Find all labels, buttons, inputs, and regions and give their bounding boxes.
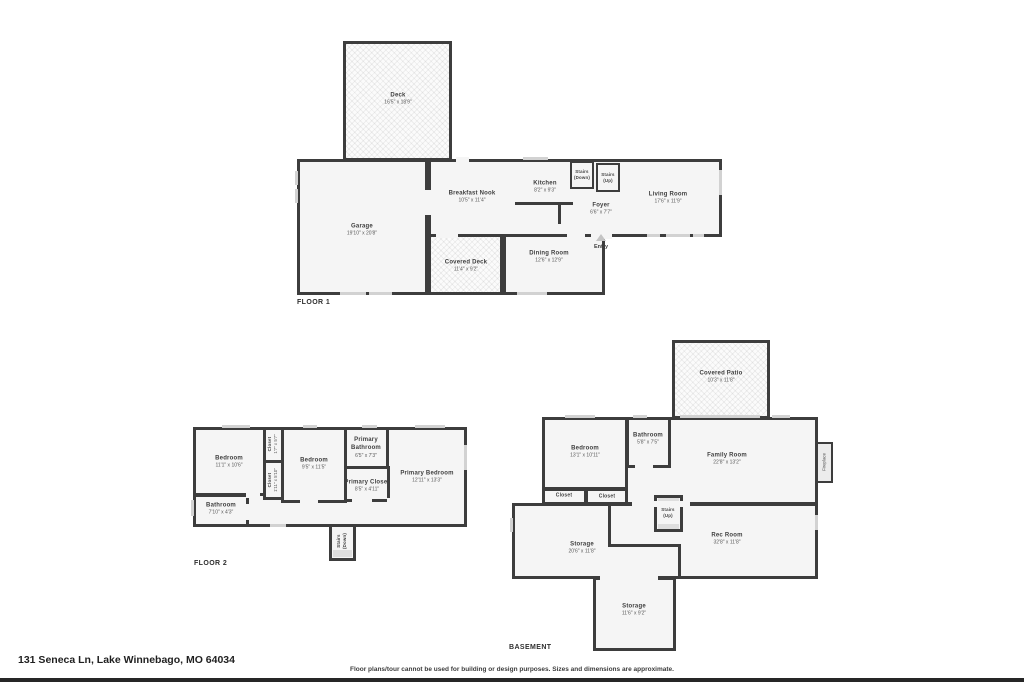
floor2-door-gap — [300, 500, 318, 505]
basement-window — [815, 515, 818, 530]
floor-plan-page: Entry Deck 16'5" x 18'9" Garage 19'10" x… — [0, 0, 1024, 682]
floor2-closet-mid-label: Closet 1'11" x 5'10" — [267, 468, 279, 492]
floor1-window — [517, 292, 547, 295]
floor2-bedroom-left-label: Bedroom 11'1" x 10'6" — [215, 454, 243, 469]
floor2-door-gap — [246, 493, 260, 498]
floor1-living-room-label: Living Room 17'6" x 11'9" — [649, 190, 688, 205]
floor1-kitchen-label: Kitchen 8'2" x 9'3" — [533, 179, 556, 194]
floor1-window — [693, 234, 704, 237]
floor1-breakfast-nook-label: Breakfast Nook 10'5" x 11'4" — [449, 189, 496, 204]
basement-window — [510, 518, 513, 532]
floor1-deck-label: Deck 16'5" x 18'9" — [384, 91, 411, 106]
floor2-window — [191, 500, 194, 516]
floor1-foyer-wall — [558, 205, 561, 224]
floor2-window — [270, 524, 286, 527]
floor2-bathroom-label: Bathroom 7'10" x 4'3" — [206, 501, 236, 516]
floor1-stairs-down-label: Stairs (Down) — [574, 169, 590, 181]
floor1-covered-deck-label: Covered Deck 11'4" x 9'2" — [445, 258, 487, 273]
floor2-window — [222, 425, 250, 428]
basement-bedroom-label: Bedroom 13'1" x 10'11" — [570, 444, 600, 459]
basement-title: BASEMENT — [509, 644, 551, 651]
floor1-title: FLOOR 1 — [297, 299, 330, 306]
floor2-stair-treads — [333, 550, 352, 557]
basement-stairs-label: Stairs (Up) — [661, 507, 674, 519]
disclaimer-text: Floor plans/tour cannot be used for buil… — [350, 666, 674, 673]
floor2-window — [464, 445, 467, 470]
floor2-door-gap — [246, 504, 251, 520]
floor2-window — [303, 425, 317, 428]
basement-window — [633, 415, 647, 418]
basement-window — [565, 415, 595, 418]
basement-fireplace-label: Fireplace — [822, 453, 827, 471]
basement-storage-lower-label: Storage 11'6" x 9'2" — [622, 602, 646, 617]
floor2-door-gap — [352, 499, 372, 504]
basement-storage-wall — [608, 505, 611, 547]
floor1-window — [295, 189, 298, 203]
floor2-stairs-label: Stairs (Down) — [336, 533, 348, 549]
basement-closet-left-label: Closet — [556, 493, 572, 500]
bottom-bar — [0, 678, 1024, 682]
basement-rec-room-label: Rec Room 32'8" x 11'8" — [711, 531, 742, 546]
floor2-primary-bathroom-label: Primary Bathroom 6'5" x 7'3" — [344, 436, 388, 460]
floor1-window — [340, 292, 366, 295]
floor2-window — [415, 425, 445, 428]
basement-door-gap — [635, 465, 653, 470]
floor1-window — [719, 170, 722, 195]
floor1-dining-door-gap — [567, 234, 585, 239]
floor2-title: FLOOR 2 — [194, 560, 227, 567]
floor2-primary-bedroom-label: Primary Bedroom 12'11" x 13'3" — [400, 469, 453, 484]
floor1-kitchen-wall — [515, 202, 573, 205]
floor1-window — [369, 292, 392, 295]
basement-stair-treads — [658, 524, 679, 529]
entry-arrow-icon — [596, 234, 606, 241]
floor1-window — [295, 171, 298, 185]
basement-storage-label: Storage 20'6" x 11'8" — [568, 540, 595, 555]
floor1-covered-deck-door-gap — [436, 233, 458, 238]
floor1-window — [666, 234, 690, 237]
floor1-foyer-label: Foyer 6'6" x 7'7" — [590, 201, 612, 216]
basement-storage-wall — [608, 544, 681, 547]
floor1-stairs-up-label: Stairs (Up) — [601, 172, 614, 184]
basement-closet-right-label: Closet — [599, 494, 615, 501]
floor1-dining-room-label: Dining Room 12'6" x 12'9" — [529, 249, 569, 264]
floor1-garage-label: Garage 19'10" x 20'8" — [347, 222, 377, 237]
floor1-garage-door-gap — [425, 190, 431, 215]
basement-covered-patio-label: Covered Patio 10'3" x 11'8" — [700, 369, 743, 384]
floor1-entry-label: Entry — [594, 244, 608, 250]
basement-window — [772, 415, 790, 418]
floor1-window — [647, 234, 660, 237]
floor1-deck-door-gap — [456, 157, 469, 162]
basement-patio-door — [680, 415, 760, 418]
property-address: 131 Seneca Ln, Lake Winnebago, MO 64034 — [18, 654, 235, 666]
basement-rec-wall — [678, 547, 681, 579]
floor2-door-gap — [387, 498, 392, 514]
floor2-bedroom-mid-label: Bedroom 9'5" x 11'5" — [300, 456, 328, 471]
floor2-window — [362, 425, 377, 428]
floor1-window — [523, 157, 548, 160]
floor2-primary-closet-label: Primary Closet 8'5" x 4'11" — [344, 478, 389, 493]
basement-storage-opening — [600, 574, 658, 581]
basement-family-room-label: Family Room 22'8" x 13'2" — [707, 451, 747, 466]
floor2-closet-top-label: Closet 1'7" x 5'7" — [267, 434, 279, 453]
basement-bathroom-label: Bathroom 5'8" x 7'5" — [633, 431, 663, 446]
